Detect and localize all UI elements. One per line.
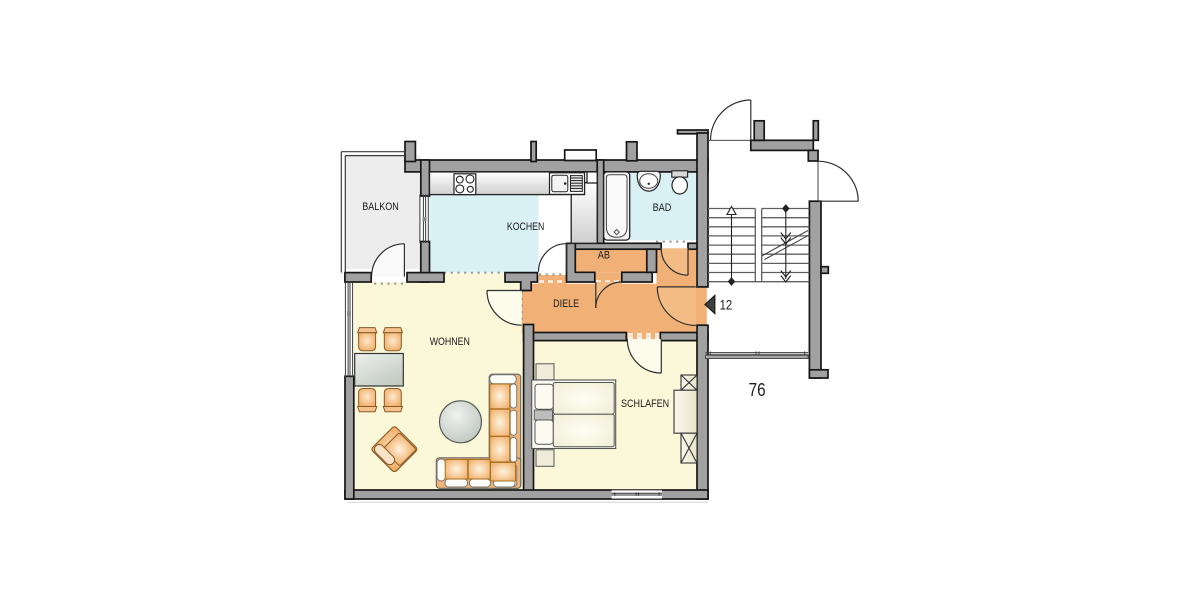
svg-text:SCHLAFEN: SCHLAFEN (621, 398, 669, 410)
svg-text:76: 76 (749, 380, 766, 400)
svg-text:BALKON: BALKON (362, 201, 399, 213)
svg-text:DIELE: DIELE (553, 298, 579, 310)
svg-text:12: 12 (720, 298, 733, 313)
svg-text:AB: AB (598, 249, 610, 261)
svg-text:BAD: BAD (653, 202, 672, 214)
svg-text:WOHNEN: WOHNEN (430, 336, 470, 348)
svg-text:KOCHEN: KOCHEN (507, 221, 544, 233)
